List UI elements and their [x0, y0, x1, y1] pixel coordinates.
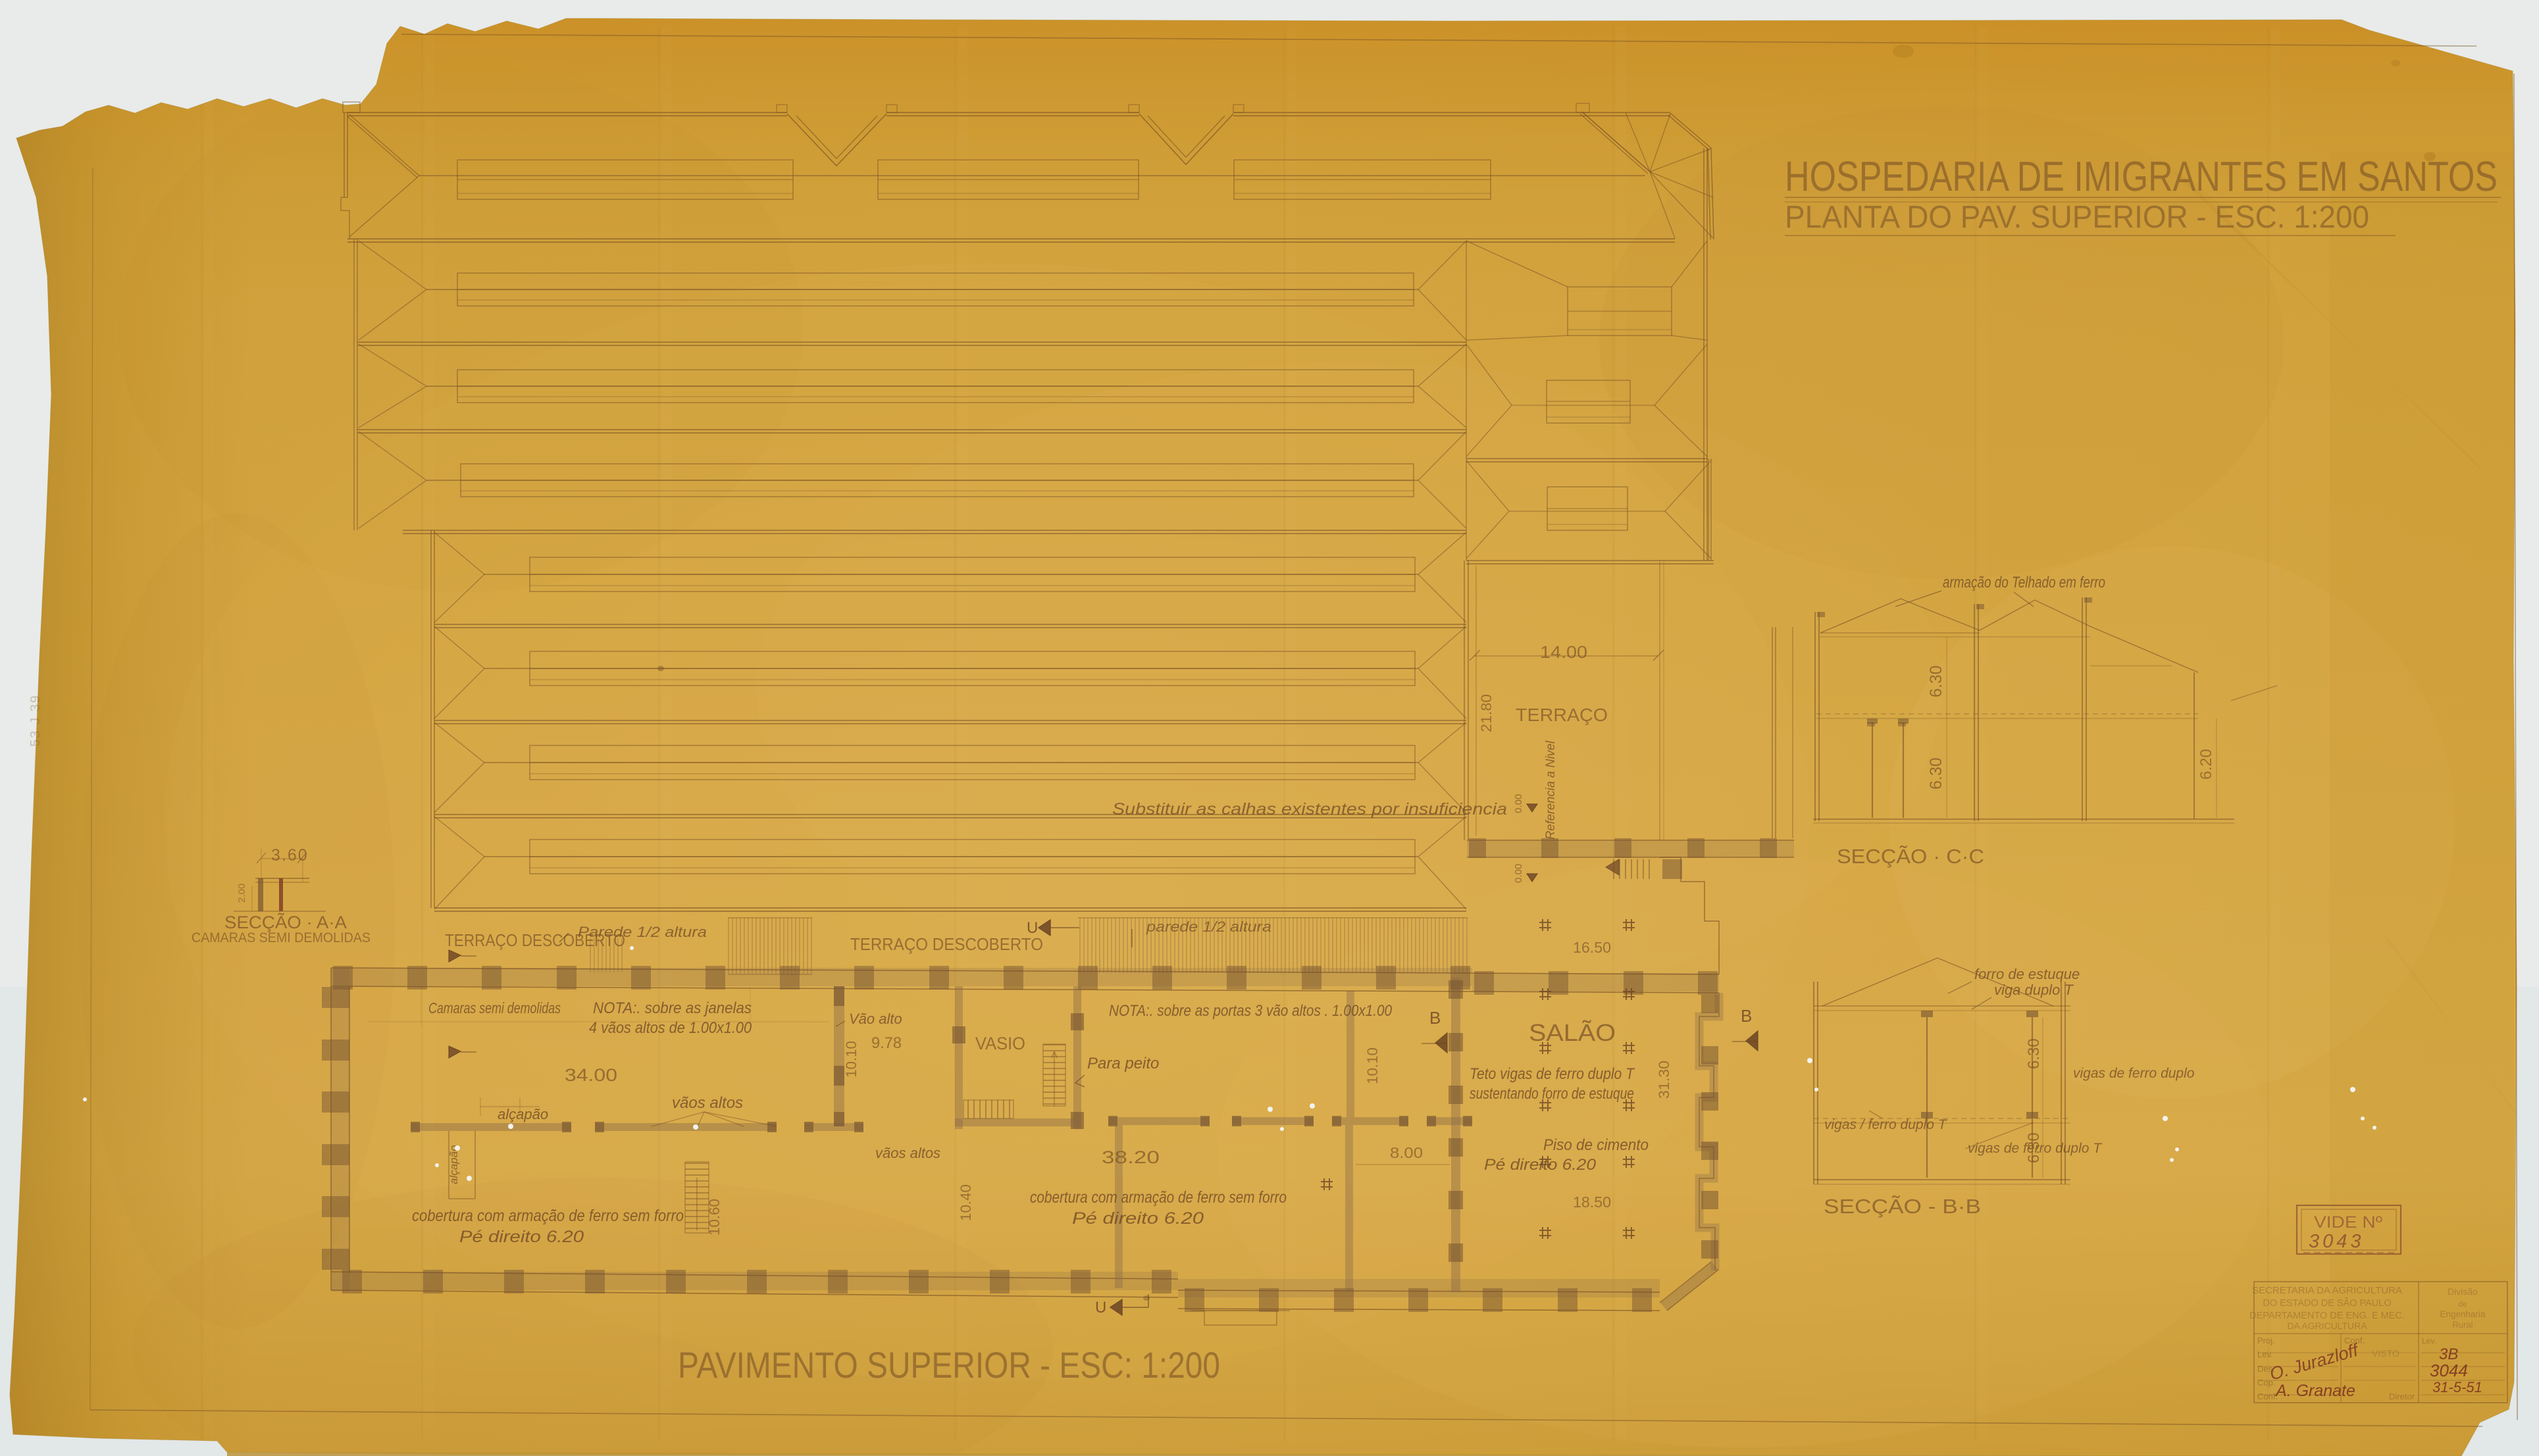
svg-text:38.20: 38.20	[1102, 1147, 1160, 1167]
svg-text:DEPARTAMENTO DE ENG. E MEC.: DEPARTAMENTO DE ENG. E MEC.	[2249, 1311, 2405, 1321]
svg-text:B: B	[1741, 1006, 1752, 1026]
svg-text:alçapão: alçapão	[448, 1145, 460, 1184]
svg-text:6.30: 6.30	[2025, 1038, 2043, 1069]
svg-text:SECÇÃO · C·C: SECÇÃO · C·C	[1837, 845, 1984, 868]
svg-text:VASIO: VASIO	[975, 1034, 1025, 1053]
svg-text:A. Granate: A. Granate	[2274, 1382, 2355, 1400]
svg-text:DA AGRICULTURA: DA AGRICULTURA	[2287, 1320, 2367, 1331]
svg-text:VISTO: VISTO	[2372, 1348, 2399, 1359]
svg-text:NOTA:. sobre as janelas: NOTA:. sobre as janelas	[593, 999, 752, 1017]
svg-text:Referencia a Nivel: Referencia a Nivel	[1544, 740, 1558, 840]
svg-text:SECÇÃO - B·B: SECÇÃO - B·B	[1824, 1195, 1981, 1218]
svg-text:TERRAÇO: TERRAÇO	[1516, 705, 1608, 725]
svg-text:SECÇÃO · A·A: SECÇÃO · A·A	[224, 912, 347, 932]
svg-text:vigas / ferro duplo T: vigas / ferro duplo T	[1824, 1117, 1948, 1132]
svg-text:Engenharia: Engenharia	[2440, 1309, 2486, 1319]
svg-text:Pé direito 6.20: Pé direito 6.20	[1072, 1209, 1204, 1228]
svg-text:9.78: 9.78	[871, 1034, 902, 1052]
svg-text:PAVIMENTO SUPERIOR - ESC: 1: PAVIMENTO SUPERIOR - ESC: 1:200	[678, 1344, 1220, 1386]
svg-text:16.50: 16.50	[1573, 939, 1611, 956]
svg-text:Lev.: Lev.	[2422, 1336, 2436, 1345]
svg-text:cobertura com armação de f: cobertura com armação de ferro sem forro	[412, 1207, 684, 1225]
svg-text:Piso de cimento: Piso de cimento	[1543, 1136, 1649, 1154]
svg-text:vãos altos: vãos altos	[875, 1145, 940, 1161]
svg-text:Vão alto: Vão alto	[849, 1011, 902, 1027]
svg-text:Lev.: Lev.	[2257, 1349, 2273, 1359]
svg-text:DO ESTADO DE SÃO PAULO: DO ESTADO DE SÃO PAULO	[2263, 1297, 2391, 1309]
svg-text:alçapão: alçapão	[498, 1106, 548, 1122]
svg-text:34.00: 34.00	[565, 1065, 617, 1085]
svg-text:31.30: 31.30	[1656, 1061, 1672, 1099]
svg-text:0.00: 0.00	[1513, 864, 1524, 883]
svg-text:3043: 3043	[2309, 1231, 2365, 1252]
svg-text:cobertura com armação de f: cobertura com armação de ferro sem forro	[1030, 1188, 1287, 1207]
svg-text:Teto vigas de ferro duplo: Teto vigas de ferro duplo T	[1470, 1065, 1635, 1083]
svg-text:SECRETARIA DA AGRICULTURA: SECRETARIA DA AGRICULTURA	[2252, 1285, 2402, 1296]
svg-text:Camaras semi demolidas: Camaras semi demolidas	[428, 999, 561, 1017]
svg-text:Pé direito 6.20: Pé direito 6.20	[1484, 1156, 1597, 1174]
svg-text:Diretor: Diretor	[2389, 1392, 2415, 1401]
svg-text:viga duplo T: viga duplo T	[1994, 982, 2074, 998]
svg-text:Substituir as calhas existente: Substituir as calhas existentes por insu…	[1112, 800, 1507, 818]
svg-text:Rural: Rural	[2452, 1320, 2473, 1330]
svg-text:14.00: 14.00	[1540, 642, 1587, 662]
svg-text:PLANTA DO PAV. SUPERIOR - ESC.: PLANTA DO PAV. SUPERIOR - ESC. 1:200	[1785, 200, 2369, 235]
svg-text:CAMARAS SEMI DEMOLIDAS: CAMARAS SEMI DEMOLIDAS	[192, 930, 371, 945]
svg-text:10.40: 10.40	[958, 1184, 974, 1221]
svg-text:Conf.: Conf.	[2257, 1392, 2278, 1401]
svg-text:TERRAÇO DESCOBERTO: TERRAÇO DESCOBERTO	[445, 930, 625, 950]
svg-text:SALÃO: SALÃO	[1529, 1019, 1616, 1046]
svg-text:2.00: 2.00	[236, 884, 247, 903]
svg-text:6.30: 6.30	[1927, 665, 1945, 697]
svg-text:Para peito: Para peito	[1087, 1055, 1159, 1072]
svg-text:vigas de ferro duplo: vigas de ferro duplo	[2073, 1066, 2195, 1081]
svg-text:Proj.: Proj.	[2257, 1336, 2275, 1345]
svg-text:armação do Telhado em ferro: armação do Telhado em ferro	[1943, 574, 2105, 591]
svg-text:0.00: 0.00	[1513, 794, 1524, 813]
svg-text:21.80: 21.80	[1478, 694, 1495, 732]
svg-text:sustentando forro de estuqu: sustentando forro de estuque	[1470, 1085, 1634, 1103]
svg-text:vãos altos: vãos altos	[672, 1094, 743, 1112]
svg-text:6.30: 6.30	[2025, 1132, 2043, 1163]
svg-text:18.50: 18.50	[1573, 1193, 1611, 1211]
svg-text:NOTA:. sobre as portas 3: NOTA:. sobre as portas 3 vão altos . 1.0…	[1109, 1002, 1393, 1020]
svg-text:TERRAÇO DESCOBERTO: TERRAÇO DESCOBERTO	[850, 934, 1043, 954]
svg-text:6.20: 6.20	[2197, 749, 2215, 780]
svg-text:53 J 39: 53 J 39	[28, 694, 43, 747]
svg-text:HOSPEDARIA DE IMIGRANTES EM SA: HOSPEDARIA DE IMIGRANTES EM SANTOS	[1785, 153, 2498, 200]
svg-text:forro de estuque: forro de estuque	[1974, 966, 2080, 982]
svg-text:10.10: 10.10	[1364, 1047, 1381, 1084]
svg-text:de: de	[2458, 1299, 2467, 1309]
svg-text:8.00: 8.00	[1390, 1144, 1423, 1161]
svg-text:U: U	[1095, 1299, 1106, 1317]
svg-text:B: B	[1429, 1008, 1441, 1028]
svg-text:Divisão: Divisão	[2448, 1286, 2478, 1297]
svg-text:10.10: 10.10	[843, 1041, 859, 1078]
svg-text:3044: 3044	[2430, 1361, 2468, 1380]
svg-text:Pé direito 6.20: Pé direito 6.20	[459, 1228, 584, 1246]
svg-text:VIDE Nº: VIDE Nº	[2314, 1213, 2382, 1232]
svg-text:31-5-51: 31-5-51	[2432, 1379, 2482, 1395]
svg-text:6.30: 6.30	[1927, 757, 1945, 790]
